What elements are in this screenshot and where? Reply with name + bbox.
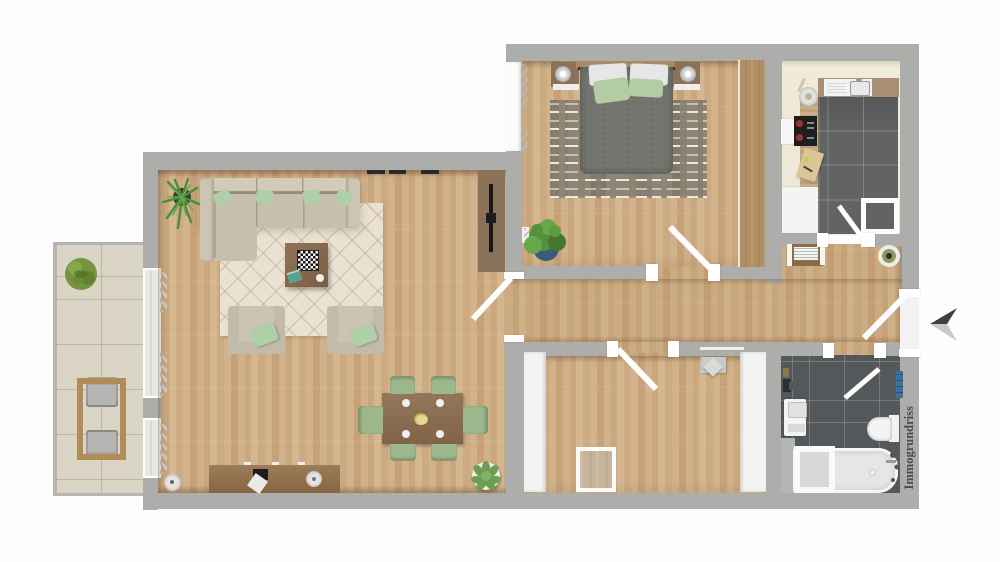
svg-text:Immogrundriss: Immogrundriss	[902, 406, 916, 489]
